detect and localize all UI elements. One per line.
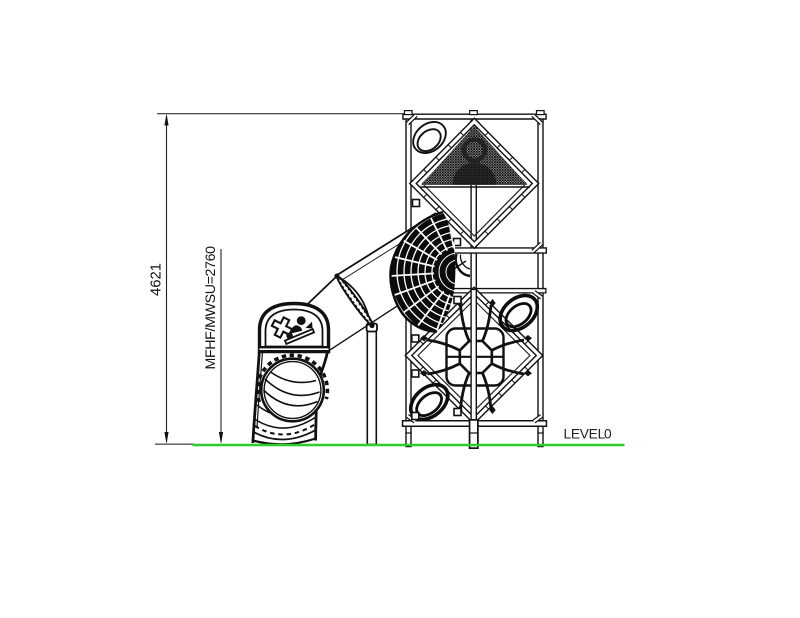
svg-text:LEVEL 0: LEVEL 0 [564, 427, 613, 442]
svg-text:4621: 4621 [149, 263, 165, 296]
svg-text:MFHF/MWSU=2760: MFHF/MWSU=2760 [203, 246, 219, 370]
